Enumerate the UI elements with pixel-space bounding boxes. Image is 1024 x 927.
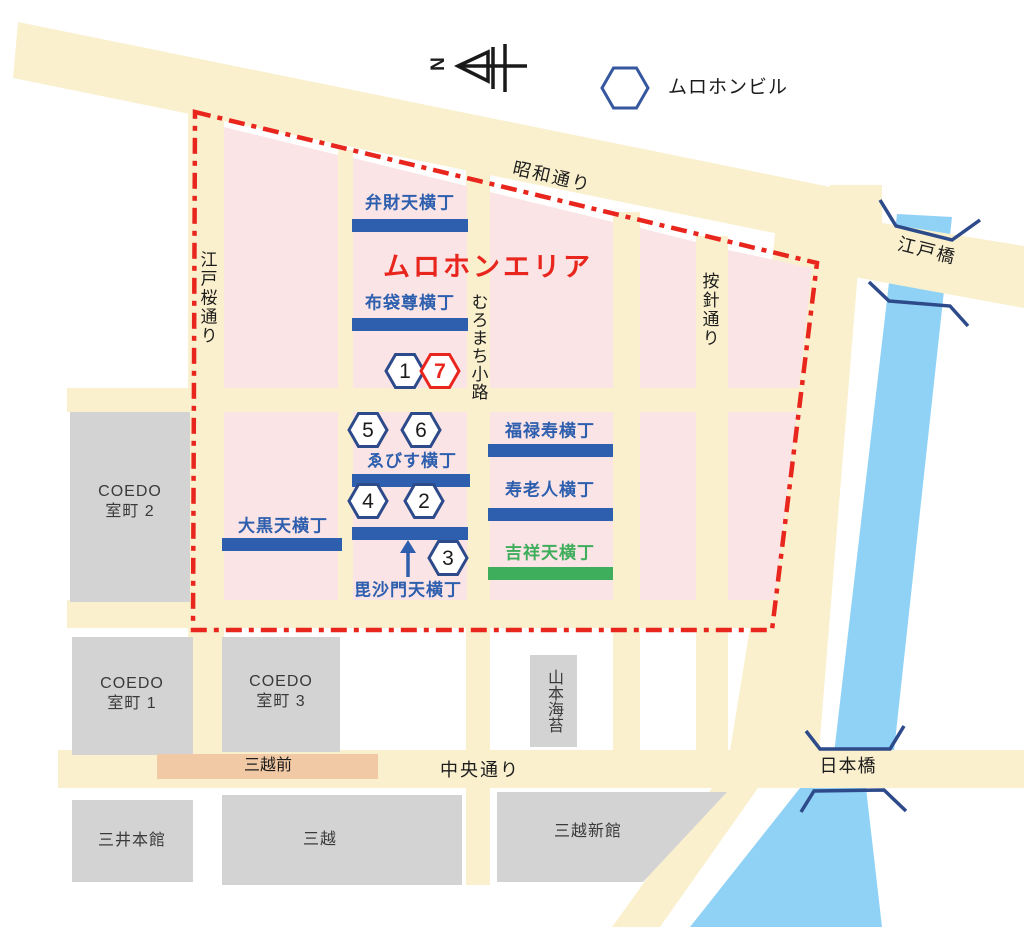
bishamonten-bar xyxy=(352,527,468,540)
block xyxy=(640,228,696,388)
yokocho-label-bishamonten: 毘沙門天横丁 xyxy=(354,579,462,600)
building-label-coedo-muromachi2: COEDO 室町 2 xyxy=(98,482,162,522)
yokocho-label-kisshoten: 吉祥天横丁 xyxy=(505,542,595,563)
yokocho-label-daikokuten: 大黒天横丁 xyxy=(238,515,328,536)
hexagon-number-2: 2 xyxy=(418,490,430,513)
building-label-line1: COEDO xyxy=(98,482,162,502)
compass-north-icon xyxy=(458,44,527,92)
hexagon-marker-4: 4 xyxy=(349,485,387,518)
building-label-line2: 室町 1 xyxy=(100,694,164,714)
kisshoten-bar xyxy=(488,567,613,580)
building-label-coedo-muromachi3: COEDO 室町 3 xyxy=(249,672,313,712)
building-label-yamamoto-nori: 山本海苔 xyxy=(541,669,565,733)
road-narrow-vertical xyxy=(338,150,353,600)
hexagon-marker-7: 7 xyxy=(421,355,459,388)
fukurokuju-bar xyxy=(488,444,613,457)
block xyxy=(224,127,338,388)
road-lower-horizontal xyxy=(67,600,800,628)
building-label-line1: COEDO xyxy=(249,672,313,692)
building-mitsukoshi xyxy=(222,795,462,885)
building-label-coedo-muromachi1: COEDO 室町 1 xyxy=(100,674,164,714)
building-label-mitsukoshi: 三越 xyxy=(303,830,337,850)
hexagon-number-3: 3 xyxy=(442,547,454,570)
area-title: ムロホンエリア xyxy=(383,251,593,285)
legend-hexagon-icon xyxy=(602,68,648,108)
block xyxy=(224,412,338,600)
street-label-chuo-dori: 中央通り xyxy=(440,759,520,782)
yokocho-label-hotei: 布袋尊横丁 xyxy=(365,292,455,313)
hotei-bar xyxy=(352,318,468,331)
jurojin-bar xyxy=(488,508,613,521)
map-shapes: 1 7 5 6 4 2 3 xyxy=(0,0,1024,927)
hexagon-number-6: 6 xyxy=(415,419,427,442)
street-label-anjin-dori: 按針通り xyxy=(697,272,722,348)
building-label-line2: 室町 2 xyxy=(98,502,162,522)
yokocho-label-fukurokuju: 福禄寿横丁 xyxy=(505,420,595,441)
street-label-edozakura-dori: 江戸桜通り xyxy=(195,251,220,346)
hexagon-marker-6: 6 xyxy=(402,414,440,447)
block xyxy=(728,250,812,388)
hexagon-marker-3: 3 xyxy=(429,542,467,575)
yokocho-label-benzaiten: 弁財天横丁 xyxy=(365,192,455,213)
block xyxy=(490,192,613,388)
block xyxy=(640,412,696,600)
compass-north-label: N xyxy=(427,57,451,71)
road-middle-vertical xyxy=(613,212,640,788)
hexagon-marker-5: 5 xyxy=(349,414,387,447)
building-label-mitsui-honkan: 三井本館 xyxy=(98,831,166,851)
benzaiten-bar xyxy=(352,219,468,232)
hexagon-marker-2: 2 xyxy=(405,485,443,518)
building-label-line1: COEDO xyxy=(100,674,164,694)
hexagon-number-4: 4 xyxy=(362,490,374,513)
building-label-line2: 室町 3 xyxy=(249,692,313,712)
street-label-nihonbashi: 日本橋 xyxy=(820,755,877,778)
building-label-mitsukoshi-shinkan: 三越新館 xyxy=(554,822,622,842)
daikokuten-bar xyxy=(222,538,342,551)
street-label-muromachi-koji: むろまち小路 xyxy=(466,293,491,401)
yokocho-label-ebisu: ゑびす横丁 xyxy=(367,450,457,471)
hexagon-marker-1: 1 xyxy=(386,355,424,388)
hexagon-number-5: 5 xyxy=(362,419,374,442)
murohon-area-map: 1 7 5 6 4 2 3 xyxy=(0,0,1024,927)
yokocho-label-jurojin: 寿老人横丁 xyxy=(505,479,595,500)
hexagon-number-1: 1 xyxy=(399,360,411,383)
legend-label: ムロホンビル xyxy=(668,76,788,100)
hexagon-number-7: 7 xyxy=(434,360,446,383)
station-label-mitsukoshimae: 三越前 xyxy=(244,756,292,776)
